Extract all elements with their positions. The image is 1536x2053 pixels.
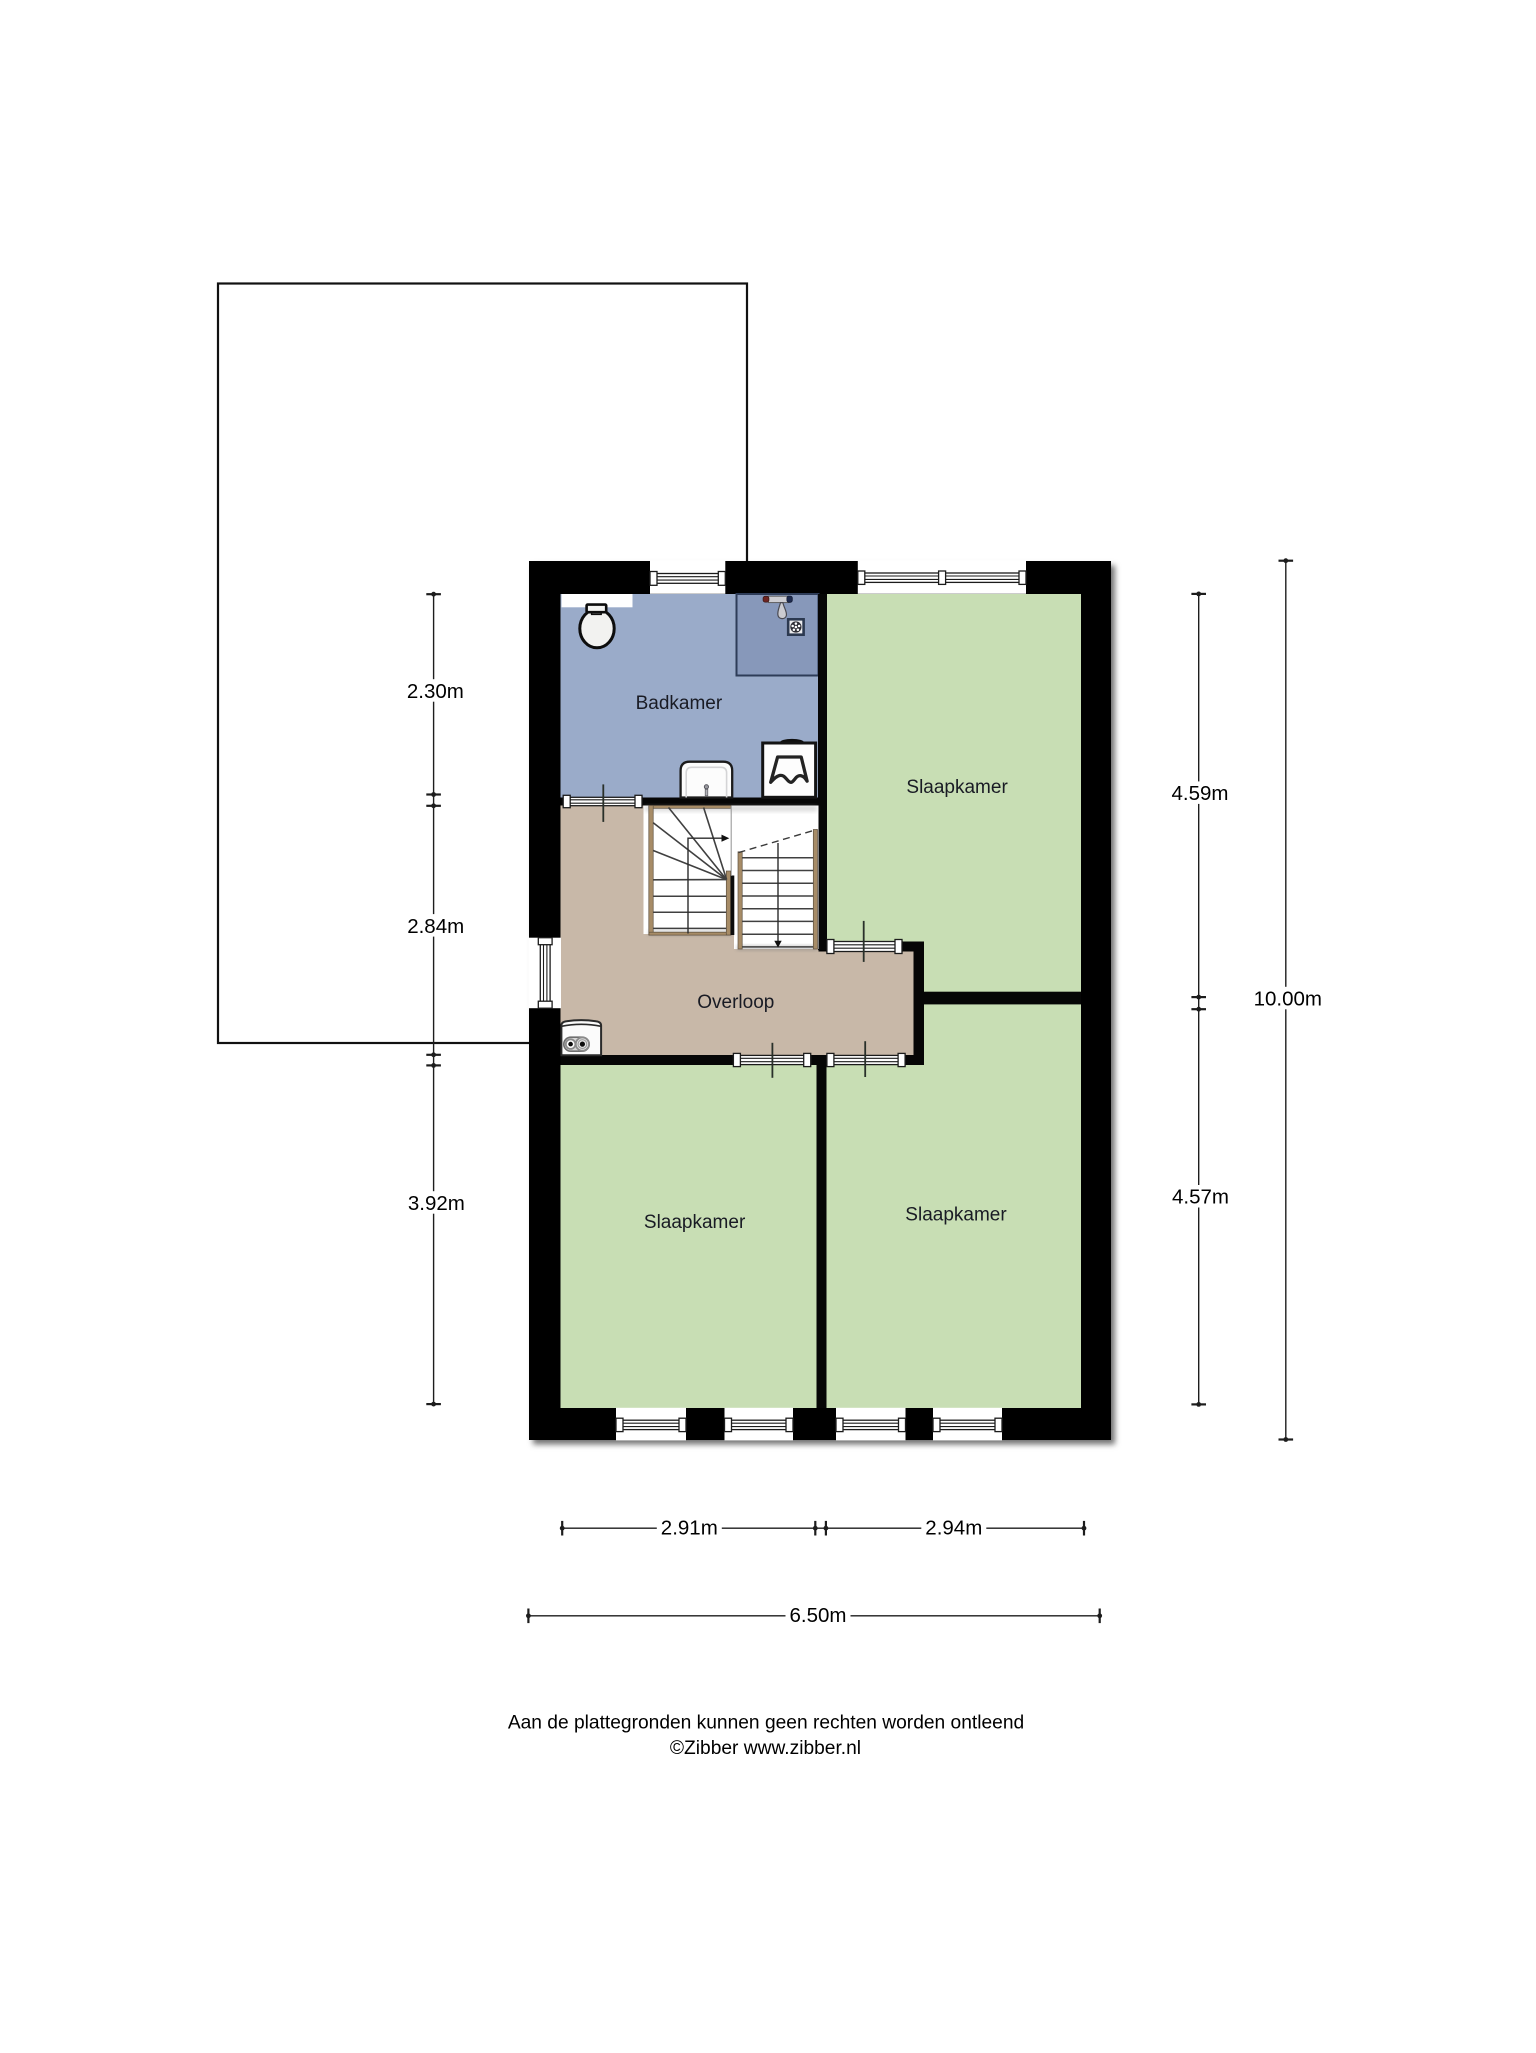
svg-text:4.59m: 4.59m: [1172, 782, 1229, 805]
svg-text:Aan de plattegronden kunnen ge: Aan de plattegronden kunnen geen rechten…: [508, 1713, 1024, 1734]
svg-text:Slaapkamer: Slaapkamer: [644, 1212, 746, 1233]
svg-text:10.00m: 10.00m: [1254, 987, 1322, 1010]
svg-text:Overloop: Overloop: [697, 992, 774, 1013]
svg-text:3.92m: 3.92m: [408, 1192, 465, 1215]
svg-text:Badkamer: Badkamer: [636, 693, 723, 714]
svg-text:2.91m: 2.91m: [661, 1517, 718, 1540]
svg-text:2.94m: 2.94m: [925, 1517, 982, 1540]
svg-text:©Zibber www.zibber.nl: ©Zibber www.zibber.nl: [670, 1738, 861, 1759]
svg-text:2.30m: 2.30m: [407, 680, 464, 703]
svg-text:4.57m: 4.57m: [1172, 1186, 1229, 1209]
svg-text:6.50m: 6.50m: [790, 1604, 847, 1627]
svg-text:2.84m: 2.84m: [407, 915, 464, 938]
svg-text:Slaapkamer: Slaapkamer: [905, 1204, 1007, 1225]
svg-text:Slaapkamer: Slaapkamer: [906, 777, 1008, 798]
